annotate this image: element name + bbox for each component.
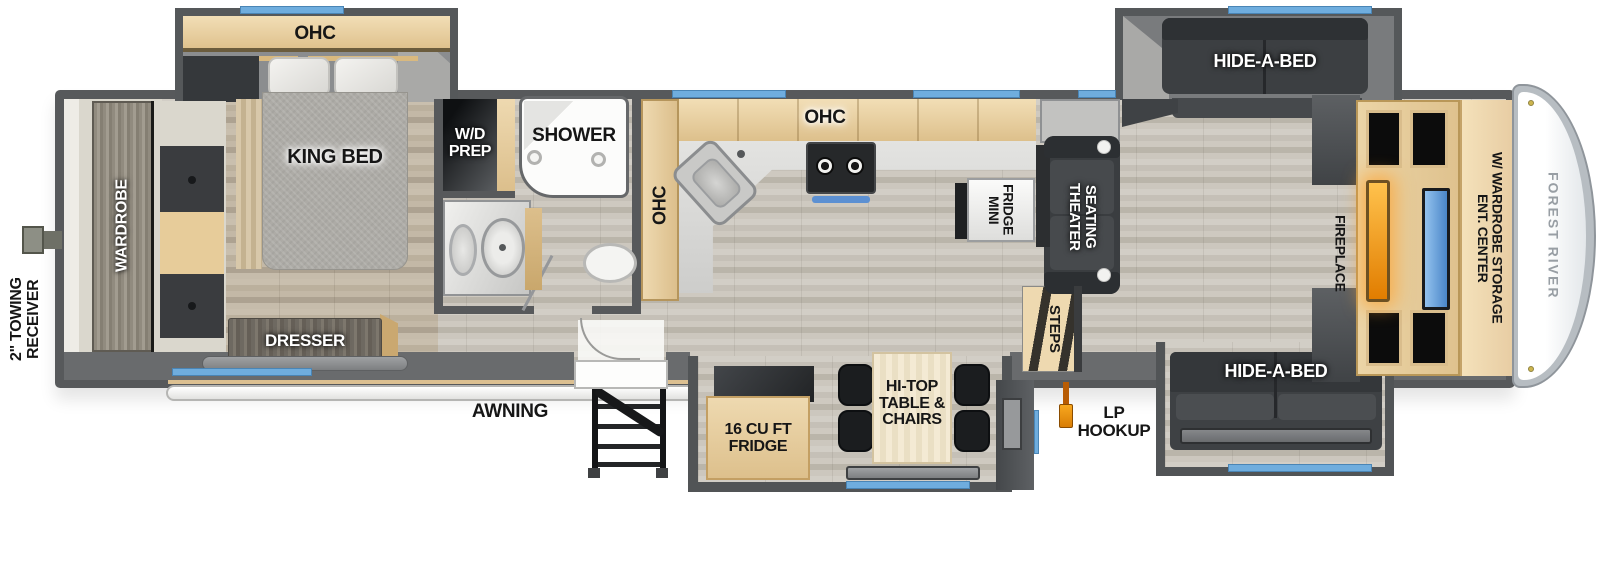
storage-compartment	[1366, 110, 1402, 168]
kitchen-window	[672, 90, 786, 98]
fireplace-label: FIREPLACE	[1328, 192, 1352, 314]
rv-floorplan: AWNING 2" TOWING RECEIVER OHC HIDE-A-BED…	[0, 0, 1600, 568]
wd-prep-label: W/D PREP	[441, 116, 499, 172]
entry-door	[574, 360, 668, 389]
closet-shelf	[497, 99, 515, 191]
hi-top-table-label: HI-TOP TABLE & CHAIRS	[874, 364, 950, 444]
sofa-slide-window-bottom	[1228, 464, 1372, 472]
kitchen-faucet	[737, 150, 745, 158]
lp-hookup-nozzle	[1059, 404, 1073, 428]
vanity-mirror	[449, 224, 477, 276]
dinette-window	[846, 481, 970, 489]
shower-drain	[527, 150, 542, 165]
theater-seating-label: THEATER SEATING	[1052, 150, 1112, 284]
nightstand	[183, 56, 259, 102]
sink-drain	[499, 244, 506, 251]
hide-a-bed-sofa-top-back	[1162, 18, 1368, 40]
fireplace	[1366, 180, 1390, 302]
wardrobe-label: WARDROBE	[94, 120, 152, 332]
lp-bay-vent	[1002, 398, 1022, 450]
steps-edge	[1074, 286, 1082, 372]
cap-fastener	[1528, 100, 1534, 106]
ent-center-label: ENT. CENTER W/ WARDROBE STORAGE	[1462, 104, 1518, 372]
hide-a-bed-bottom-footrest	[1180, 428, 1372, 444]
entertainment-cabinet	[1312, 95, 1360, 185]
pillow	[334, 57, 398, 97]
towing-receiver-label: 2" TOWING RECEIVER	[0, 246, 52, 392]
rear-cap-panel	[64, 99, 79, 352]
refrigerator-label: 16 CU FT FRIDGE	[708, 414, 808, 464]
lp-hookup-stem	[1063, 382, 1069, 406]
kitchen-sink-basin	[689, 155, 744, 211]
king-bed-label: KING BED	[272, 144, 398, 170]
bottom-wall	[666, 352, 690, 380]
stove-accent	[812, 196, 870, 203]
bedroom-slide-window	[240, 6, 344, 14]
entry-steps-foot	[656, 468, 668, 478]
lp-hookup-label: LP HOOKUP	[1072, 398, 1156, 446]
living-window	[1078, 90, 1116, 98]
sofa-cushion	[1176, 394, 1274, 420]
dining-chair	[954, 364, 990, 406]
entry-step	[598, 462, 660, 467]
mini-fridge-side	[955, 183, 967, 239]
pillow	[268, 57, 330, 97]
console-shelf	[160, 212, 224, 274]
steps-label: STEPS	[1040, 290, 1068, 368]
forest-river-logo: FOREST RIVER	[1538, 140, 1568, 332]
hall-ohc-label: OHC	[645, 150, 675, 260]
king-bed	[262, 92, 408, 270]
stove-burner	[816, 157, 834, 175]
stove-burner	[846, 157, 864, 175]
cap-fastener	[1528, 366, 1534, 372]
toilet	[583, 243, 637, 283]
kitchen-window	[913, 90, 1020, 98]
mini-fridge-label: MINI FRIDGE	[969, 180, 1033, 240]
dresser-label: DRESSER	[240, 328, 370, 354]
bed-side-rail	[236, 99, 262, 269]
storage-compartment	[1410, 110, 1448, 168]
cabinet-knob	[188, 302, 196, 310]
lp-bay-window	[1034, 410, 1039, 454]
entry-step	[598, 444, 660, 449]
wall	[434, 306, 534, 314]
entry-steps-foot	[588, 468, 600, 478]
kitchen-end-cabinet	[1036, 145, 1050, 247]
wall	[592, 306, 641, 314]
sofa-cushion	[1278, 394, 1376, 420]
vanity-drawers	[525, 208, 542, 290]
shower-drain	[591, 152, 606, 167]
window-seat-bench	[846, 466, 980, 480]
awning-label: AWNING	[458, 400, 562, 424]
sofa-slide-window-top	[1228, 6, 1372, 14]
hide-a-bed-top-label: HIDE-A-BED	[1168, 46, 1362, 76]
bedroom-ohc-label: OHC	[250, 18, 380, 50]
dining-chair	[838, 410, 874, 452]
storage-compartment	[1366, 310, 1402, 366]
wall	[443, 191, 515, 198]
dining-chair	[838, 364, 874, 406]
wall	[632, 99, 641, 313]
tv	[1422, 188, 1450, 310]
bedroom-window	[172, 368, 312, 376]
dining-chair	[954, 410, 990, 452]
storage-compartment	[1410, 310, 1448, 366]
cabinet-knob	[188, 176, 196, 184]
kitchen-ohc-label: OHC	[790, 103, 860, 133]
hide-a-bed-bottom-label: HIDE-A-BED	[1186, 356, 1366, 386]
shower-label: SHOWER	[523, 124, 625, 148]
